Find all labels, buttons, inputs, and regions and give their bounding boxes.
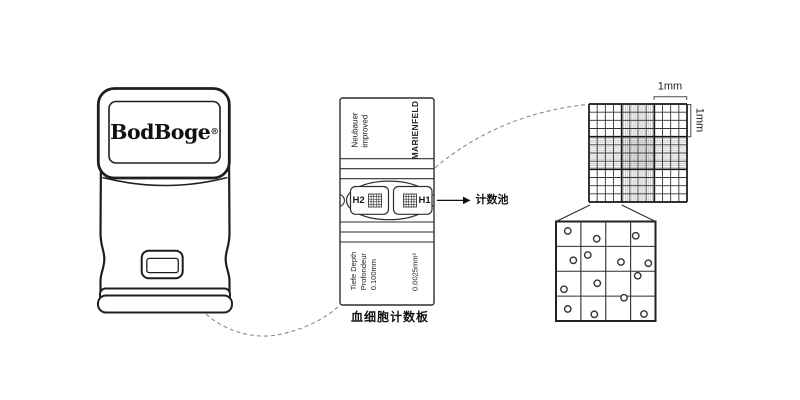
registered-mark: ® xyxy=(210,127,219,137)
counting-pool-label: 计数池 xyxy=(476,194,509,207)
cell-dot xyxy=(641,311,647,317)
slide-maker-type-text: Neubauer improved xyxy=(351,112,372,147)
chamber-h1-label: H1 xyxy=(419,194,431,207)
cell-dot xyxy=(621,295,627,301)
width-bracket xyxy=(654,97,687,100)
cell-dot xyxy=(594,280,600,286)
cell-dot xyxy=(634,273,640,279)
cell-dot xyxy=(570,257,576,263)
magnified-counting-square xyxy=(556,222,656,322)
diagram-canvas: BodBoge® Neubauer improved MARIENFELD H2… xyxy=(0,0,800,400)
cell-dot xyxy=(585,252,591,258)
cell-dot xyxy=(591,311,597,317)
device-brand-logo: BodBoge® xyxy=(109,102,220,164)
slide-brand-text: MARIENFELD xyxy=(409,101,419,160)
neubauer-grid xyxy=(589,104,687,202)
brand-text: BodBoge xyxy=(110,120,210,145)
zoom-projection-lines xyxy=(556,205,656,222)
height-bracket xyxy=(688,105,691,137)
cell-dot xyxy=(618,259,624,265)
cell-dot xyxy=(561,286,567,292)
slide-area-text: 0.0025mm² xyxy=(410,253,419,291)
grid-icon xyxy=(404,194,417,207)
cell-dot xyxy=(645,260,651,266)
slide-caption: 血细胞计数板 xyxy=(351,310,429,324)
slide-to-grid-curve xyxy=(410,105,587,193)
cell-dot xyxy=(565,306,571,312)
chamber-h2-label: H2 xyxy=(353,194,365,207)
pointer-arrowhead-icon xyxy=(463,197,471,205)
cell-dot xyxy=(632,233,638,239)
slide-depth-text: Tiefe Depth Profondeur 0.100mm xyxy=(349,252,379,291)
slide-slot-outer xyxy=(142,251,183,279)
grid-width-label: 1mm xyxy=(658,80,682,93)
cell-dot xyxy=(565,228,571,234)
grid-icon xyxy=(369,194,382,207)
device-base-lower xyxy=(98,296,232,313)
cell-dot xyxy=(593,236,599,242)
diagram-artwork xyxy=(0,0,800,400)
grid-height-label: 1mm xyxy=(692,108,705,132)
